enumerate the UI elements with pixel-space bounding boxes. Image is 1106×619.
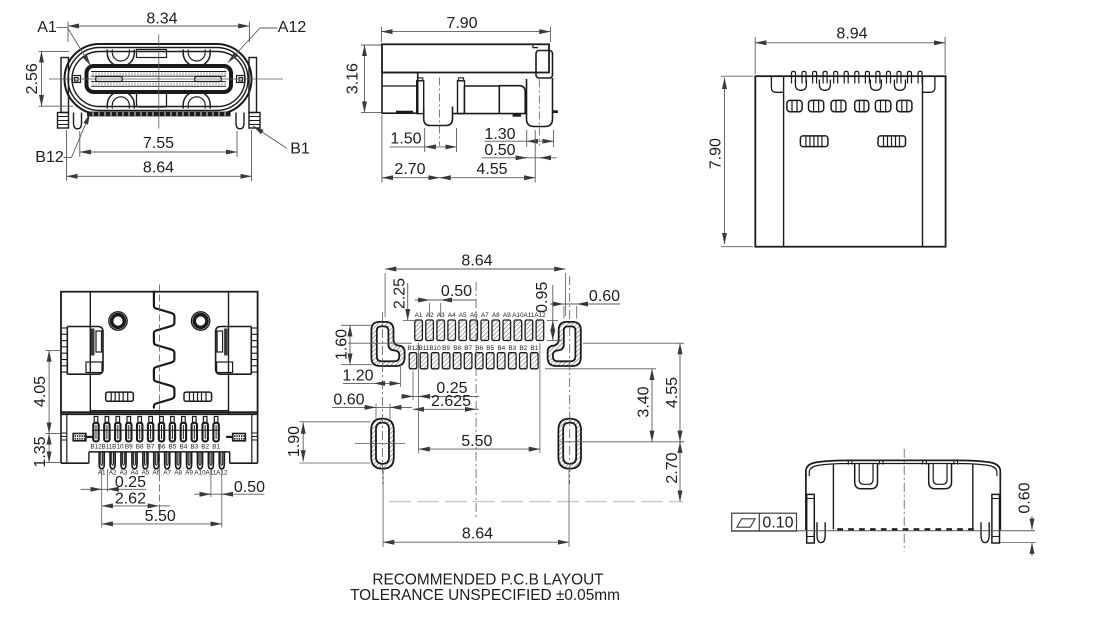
svg-text:0.60: 0.60 (333, 391, 364, 408)
svg-text:2.62: 2.62 (115, 490, 146, 507)
svg-text:A5: A5 (459, 312, 467, 319)
svg-text:TOLERANCE UNSPECIFIED ±0.05mm: TOLERANCE UNSPECIFIED ±0.05mm (350, 587, 620, 604)
svg-text:2.56: 2.56 (24, 63, 41, 94)
svg-text:B10: B10 (112, 443, 124, 450)
svg-text:B5: B5 (169, 443, 177, 450)
svg-text:5.50: 5.50 (145, 508, 176, 525)
svg-text:4.55: 4.55 (476, 161, 507, 178)
svg-text:B12: B12 (90, 443, 102, 450)
svg-text:B1: B1 (530, 345, 538, 352)
svg-text:A8: A8 (174, 470, 182, 477)
svg-text:0.60: 0.60 (589, 288, 620, 305)
svg-text:A9: A9 (503, 312, 511, 319)
svg-text:1.20: 1.20 (342, 367, 373, 384)
svg-text:B10: B10 (429, 345, 441, 352)
svg-text:A8: A8 (492, 312, 500, 319)
svg-text:0.50: 0.50 (234, 479, 265, 496)
svg-text:7.90: 7.90 (708, 138, 725, 169)
svg-text:B11: B11 (101, 443, 112, 450)
svg-text:A6: A6 (152, 470, 160, 477)
svg-text:8.64: 8.64 (461, 252, 492, 269)
svg-text:0.60: 0.60 (1017, 482, 1034, 513)
svg-text:RECOMMENDED P.C.B LAYOUT: RECOMMENDED P.C.B LAYOUT (372, 572, 604, 589)
svg-text:A10: A10 (194, 470, 206, 477)
svg-text:1.30: 1.30 (484, 126, 515, 143)
svg-text:2.625: 2.625 (431, 393, 471, 410)
svg-text:B8: B8 (136, 443, 144, 450)
svg-text:B3: B3 (508, 345, 516, 352)
svg-text:A1: A1 (415, 312, 423, 319)
svg-text:8.64: 8.64 (462, 526, 493, 543)
svg-text:2.70: 2.70 (394, 161, 425, 178)
svg-text:B1: B1 (212, 443, 220, 450)
svg-text:8.64: 8.64 (143, 159, 174, 176)
svg-text:B7: B7 (147, 443, 155, 450)
svg-text:B7: B7 (464, 345, 472, 352)
svg-text:B2: B2 (201, 443, 209, 450)
svg-text:0.10: 0.10 (762, 515, 793, 532)
svg-text:B6: B6 (475, 345, 483, 352)
svg-text:A10: A10 (512, 312, 524, 319)
svg-text:B12: B12 (407, 345, 419, 352)
svg-text:B8: B8 (453, 345, 461, 352)
svg-text:A12: A12 (278, 19, 307, 36)
svg-text:B5: B5 (486, 345, 494, 352)
svg-text:A1: A1 (37, 19, 57, 36)
svg-text:1.90: 1.90 (286, 426, 303, 457)
svg-text:1.60: 1.60 (334, 329, 351, 360)
svg-text:0.50: 0.50 (484, 142, 515, 159)
svg-text:B11: B11 (419, 345, 430, 352)
svg-text:A7: A7 (163, 470, 171, 477)
svg-text:1.35: 1.35 (32, 436, 49, 467)
svg-text:B6: B6 (158, 443, 166, 450)
svg-text:B12: B12 (35, 149, 64, 166)
svg-text:3.40: 3.40 (635, 386, 652, 417)
svg-text:A6: A6 (470, 312, 478, 319)
svg-text:A4: A4 (448, 312, 456, 319)
svg-text:3.16: 3.16 (345, 63, 362, 94)
svg-text:0.50: 0.50 (441, 283, 472, 300)
svg-text:B9: B9 (442, 345, 450, 352)
svg-text:A9: A9 (185, 470, 193, 477)
svg-text:0.25: 0.25 (115, 474, 146, 491)
svg-text:7.55: 7.55 (143, 135, 174, 152)
svg-text:4.55: 4.55 (664, 377, 681, 408)
svg-text:2.70: 2.70 (664, 452, 681, 483)
svg-text:B1: B1 (290, 141, 310, 158)
svg-text:5.50: 5.50 (461, 433, 492, 450)
svg-text:0.95: 0.95 (534, 282, 551, 313)
svg-text:B2: B2 (519, 345, 527, 352)
svg-text:7.90: 7.90 (446, 15, 477, 32)
svg-text:B3: B3 (190, 443, 198, 450)
svg-text:2.25: 2.25 (391, 278, 408, 309)
svg-text:B4: B4 (179, 443, 187, 450)
svg-text:8.34: 8.34 (146, 11, 177, 28)
svg-text:B4: B4 (497, 345, 505, 352)
svg-text:4.05: 4.05 (32, 376, 49, 407)
svg-text:B9: B9 (125, 443, 133, 450)
svg-text:A7: A7 (481, 312, 489, 319)
svg-text:1.50: 1.50 (390, 130, 421, 147)
svg-text:8.94: 8.94 (836, 26, 867, 43)
